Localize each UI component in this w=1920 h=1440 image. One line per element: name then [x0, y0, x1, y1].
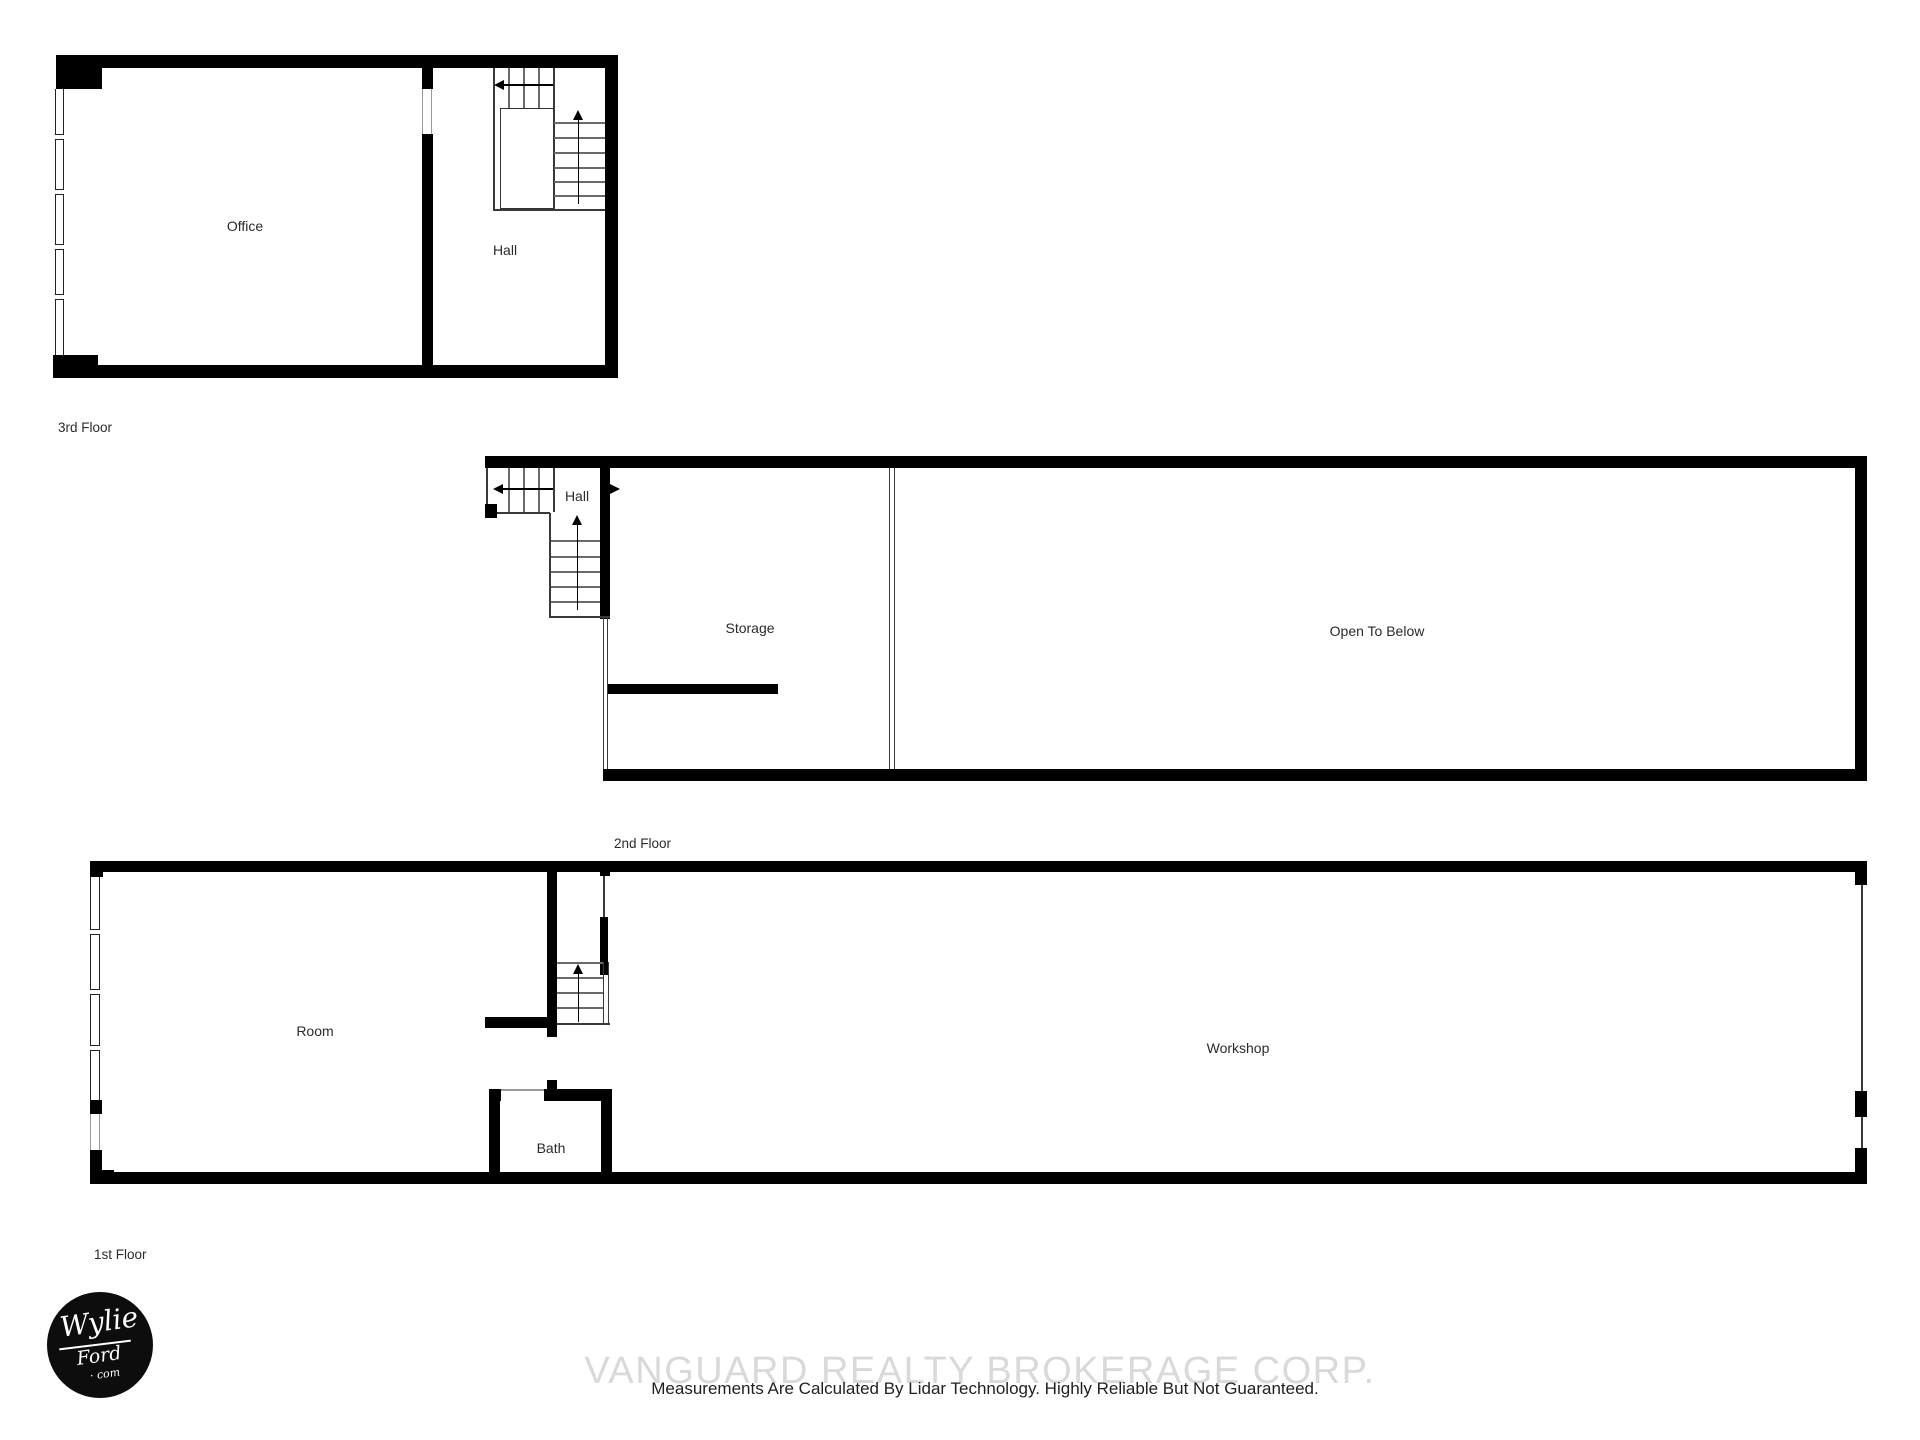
stair-tread-line [557, 977, 603, 979]
wall-segment [600, 872, 610, 876]
open-boundary-line [894, 468, 895, 769]
wall-segment [98, 365, 618, 378]
garage-opening-line [1861, 1117, 1863, 1148]
measurement-disclaimer: Measurements Are Calculated By Lidar Tec… [535, 1379, 1435, 1399]
logo-name-line1: Wylie [58, 1300, 140, 1344]
stair-tread-line [554, 167, 605, 169]
stair-stringer-line [603, 962, 604, 1024]
wall-corner-block [90, 1170, 114, 1184]
stair-arrow-shaft [502, 488, 553, 490]
stair-tread-line [523, 468, 525, 512]
wall-corner-block [53, 355, 98, 378]
wall-segment [485, 504, 497, 518]
stair-tread-line [554, 122, 605, 124]
wall-corner-block [56, 55, 102, 89]
wall-segment [485, 456, 1867, 468]
open-boundary-line [889, 468, 890, 769]
stairwell-edge-line [603, 876, 605, 917]
stair-arrow-shaft [577, 524, 579, 610]
window-mullion [90, 1045, 100, 1051]
stair-tread-line [551, 571, 600, 573]
window-mullion [55, 189, 64, 195]
stair-tread-line [508, 68, 510, 108]
room-label-hall-2nd: Hall [565, 488, 589, 504]
floor-caption-1st: 1st Floor [94, 1247, 147, 1262]
wall-corner-block [90, 861, 103, 877]
stair-tread-line [554, 195, 605, 197]
door-jamb-line [422, 89, 423, 134]
window-mullion [55, 294, 64, 300]
wylie-ford-logo: Wylie Ford · com [47, 1292, 153, 1398]
wall-segment [608, 684, 778, 694]
stair-tread-line [551, 556, 600, 558]
stair-edge-line [549, 616, 610, 618]
stair-edge-line [497, 512, 550, 514]
garage-opening-line [1861, 885, 1863, 1091]
wall-segment [485, 1017, 547, 1028]
wall-segment [489, 1089, 500, 1184]
stair-edge-line [553, 468, 555, 512]
stair-tread-line [508, 468, 510, 512]
stair-arrow-shaft [503, 84, 553, 86]
wall-segment [90, 1172, 1867, 1184]
stair-tread-line [554, 181, 605, 183]
stair-tread-line [551, 540, 600, 542]
stair-tread-line [554, 152, 605, 154]
door-jamb-line [99, 1114, 100, 1150]
window-mullion [55, 134, 64, 140]
open-boundary-line [603, 618, 604, 769]
stairwell-opening [500, 108, 554, 209]
floor-caption-2nd: 2nd Floor [614, 836, 671, 851]
wall-segment [1855, 456, 1867, 781]
wall-segment [600, 512, 610, 619]
wall-corner-block [1855, 861, 1867, 885]
stair-tread-line [538, 468, 540, 512]
door-line [501, 1089, 544, 1091]
wall-pier [1855, 1091, 1867, 1117]
stair-tread-line [523, 68, 525, 108]
room-label-office: Office [227, 218, 263, 234]
floorplan-canvas: Office Hall 3rd Floor [0, 0, 1920, 1440]
logo-name-line3: · com [89, 1365, 121, 1382]
door-jamb-line [90, 1114, 91, 1150]
floor-caption-3rd: 3rd Floor [58, 420, 112, 435]
wall-segment [601, 1089, 612, 1184]
hall-west-line [486, 468, 488, 506]
stair-tread-line [551, 586, 600, 588]
room-label-bath: Bath [537, 1140, 566, 1156]
room-label-storage: Storage [725, 620, 774, 636]
window-mullion [90, 989, 100, 995]
wall-segment [603, 769, 1867, 781]
wall-segment [547, 872, 557, 1037]
stair-tread-line [557, 992, 603, 994]
stair-arrow-shaft [578, 119, 580, 204]
stair-tread-line [551, 601, 600, 603]
stair-arrow-shaft [578, 973, 580, 1022]
wall-segment [422, 134, 433, 378]
room-label-room: Room [296, 1023, 333, 1039]
stair-tread-line [538, 68, 540, 108]
window-strip [55, 89, 64, 355]
wall-segment [90, 1100, 102, 1114]
wall-corner-block [1855, 1148, 1867, 1184]
wall-segment [605, 55, 618, 378]
wall-segment [600, 917, 608, 975]
stair-tread-line [557, 1007, 603, 1009]
window-mullion [90, 929, 100, 935]
stair-right-arrow-icon [610, 484, 620, 494]
wall-segment [422, 68, 433, 89]
window-mullion [55, 244, 64, 250]
wall-segment [600, 468, 610, 512]
stair-tread-line [554, 137, 605, 139]
stair-stringer-line [608, 962, 609, 1024]
room-label-open-to-below: Open To Below [1330, 623, 1425, 639]
room-label-workshop: Workshop [1207, 1040, 1270, 1056]
room-label-hall-3rd: Hall [493, 242, 517, 258]
wall-segment [56, 55, 618, 68]
wall-segment [90, 861, 1867, 872]
door-jamb-line [431, 89, 432, 134]
stair-edge-line [493, 209, 605, 211]
